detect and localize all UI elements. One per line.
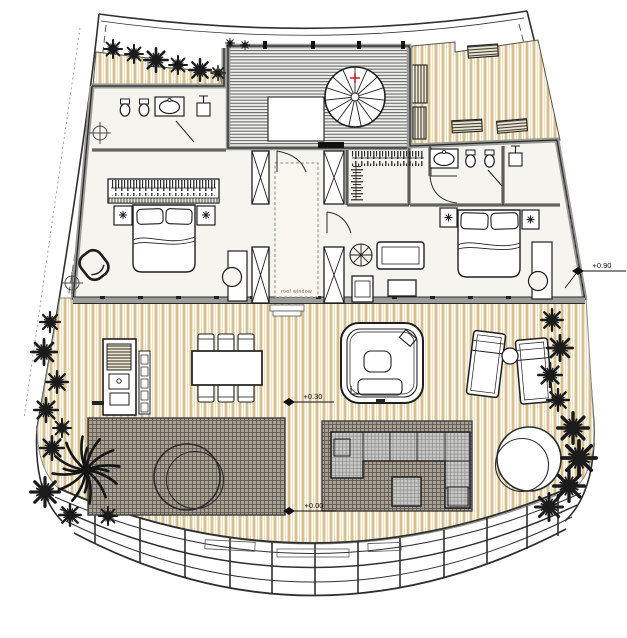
floor-plan-page: roof window xyxy=(0,0,627,638)
stair-wall-segment xyxy=(318,142,344,148)
elevation-label: +0.90 xyxy=(593,261,612,270)
wardrobe-icon xyxy=(352,151,424,166)
bench-icon xyxy=(452,119,483,133)
bench-icon xyxy=(468,44,499,58)
bench-icon xyxy=(412,65,427,103)
coffee-table-icon xyxy=(388,280,416,296)
dining-set xyxy=(192,334,262,402)
toilet-icon xyxy=(485,150,495,167)
side-table-icon xyxy=(352,276,373,302)
dining-table-icon xyxy=(192,351,262,385)
shrub-icon xyxy=(104,40,122,58)
spiral-staircase-icon xyxy=(325,67,385,127)
round-side-table-icon xyxy=(502,348,518,364)
nightstand-lamp-icon xyxy=(197,206,215,225)
chair-icon xyxy=(223,268,242,287)
sun-lounger-icon xyxy=(466,330,506,397)
stair-landing xyxy=(268,97,324,141)
elevation-label: +0.30 xyxy=(304,392,323,401)
nightstand-lamp-icon xyxy=(440,208,457,227)
bench-icon xyxy=(413,107,426,139)
bidet-icon xyxy=(466,150,476,167)
sofa-icon xyxy=(377,242,424,269)
bidet-icon xyxy=(139,99,149,116)
wardrobe-icon xyxy=(349,166,363,202)
jacuzzi-icon xyxy=(341,323,423,403)
bench-icon xyxy=(497,119,528,134)
wardrobe-icon xyxy=(108,179,219,203)
elevation-label: +0.00 xyxy=(305,501,324,510)
double-bed-icon xyxy=(458,210,520,277)
deck-steps xyxy=(270,305,304,316)
nightstand-lamp-icon xyxy=(522,210,539,229)
potted-plant-icon xyxy=(350,244,372,266)
deck-shelf xyxy=(139,351,150,414)
coffee-table-icon xyxy=(392,477,421,506)
washbasin-icon xyxy=(430,149,458,168)
floor-plan-canvas: roof window xyxy=(0,0,627,638)
washbasin-icon xyxy=(155,97,184,116)
chair-icon xyxy=(529,272,548,291)
deck-terrace-top-right xyxy=(412,40,560,144)
stairwell xyxy=(228,41,409,148)
double-bed-icon xyxy=(133,205,195,272)
toilet-icon xyxy=(120,99,130,116)
nightstand-lamp-icon xyxy=(114,206,132,225)
roof-window-label: roof window xyxy=(281,289,312,295)
roof-window: roof window xyxy=(275,163,318,297)
